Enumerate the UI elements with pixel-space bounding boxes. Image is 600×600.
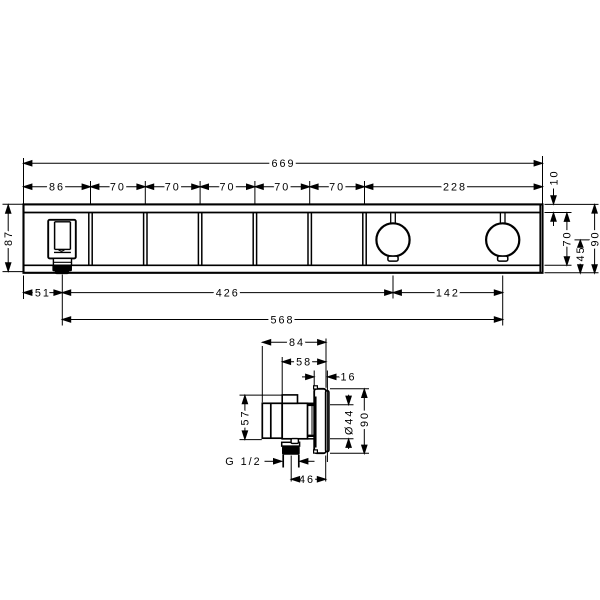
svg-text:Ø44: Ø44 [343,409,355,435]
svg-text:70: 70 [274,182,290,194]
svg-text:87: 87 [3,230,15,246]
svg-text:57: 57 [240,409,252,425]
svg-text:70: 70 [165,182,181,194]
svg-text:669: 669 [271,158,295,170]
svg-text:58: 58 [296,357,312,369]
svg-text:70: 70 [219,182,235,194]
svg-text:568: 568 [270,314,294,326]
svg-text:70: 70 [562,230,574,246]
svg-text:10: 10 [548,169,560,185]
svg-text:84: 84 [289,337,305,349]
svg-text:70: 70 [110,182,126,194]
svg-text:70: 70 [329,182,345,194]
svg-text:46: 46 [299,474,315,486]
svg-text:426: 426 [216,287,240,299]
svg-text:16: 16 [340,372,356,384]
svg-text:90: 90 [359,411,371,427]
svg-text:228: 228 [443,182,467,194]
svg-text:86: 86 [49,182,65,194]
svg-text:G 1/2: G 1/2 [225,456,261,468]
svg-text:142: 142 [436,287,460,299]
svg-text:45: 45 [575,245,587,261]
svg-text:90: 90 [589,230,600,246]
svg-text:51: 51 [35,287,51,299]
